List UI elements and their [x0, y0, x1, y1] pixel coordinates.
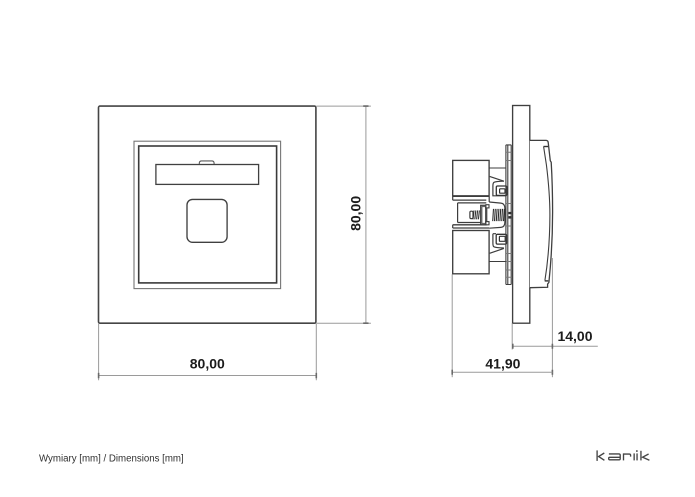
- svg-text:80,00: 80,00: [348, 196, 364, 231]
- svg-text:80,00: 80,00: [190, 356, 225, 372]
- svg-text:41,90: 41,90: [485, 356, 520, 372]
- svg-text:14,00: 14,00: [557, 328, 592, 344]
- svg-text:Wymiary [mm] / Dimensions [mm]: Wymiary [mm] / Dimensions [mm]: [39, 453, 184, 464]
